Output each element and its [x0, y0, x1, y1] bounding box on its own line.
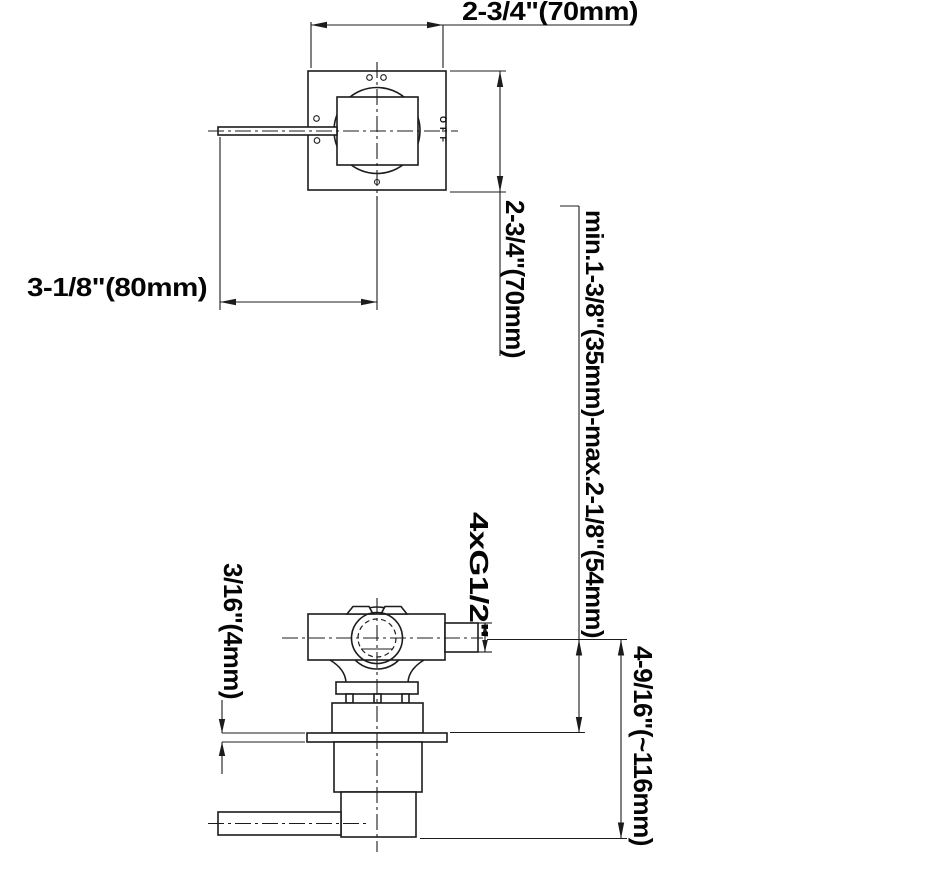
- arrowhead-right: [427, 22, 443, 28]
- arrowhead-up: [618, 640, 624, 656]
- valve-dimension-drawing: OFF 2-3/4"(70mm) 2-3/4"(70mm) 3-1/8"(80m…: [0, 0, 951, 895]
- dim-port-spec: 4xG1/2": [464, 512, 494, 652]
- handle-hub: [341, 792, 416, 837]
- arrowhead-up: [497, 71, 503, 87]
- dim-port-spec-label: 4xG1/2": [464, 512, 494, 638]
- dim-handle-projection-label: 3-1/8"(80mm): [27, 272, 207, 302]
- valve-wing-right: [381, 607, 407, 615]
- arrowhead-left: [311, 22, 327, 28]
- valve-wing-left: [347, 607, 373, 615]
- front-view: OFF: [208, 62, 458, 200]
- dim-plate-width-label: 2-3/4"(70mm): [462, 0, 638, 26]
- dim-plate-height: 2-3/4"(70mm): [450, 71, 530, 358]
- stud: [346, 694, 353, 703]
- stud: [402, 694, 409, 703]
- dim-plate-thickness: 3/16"(4mm): [218, 563, 305, 774]
- dim-plate-height-label: 2-3/4"(70mm): [500, 200, 530, 358]
- arrowhead-up: [219, 742, 225, 756]
- arrowhead-down: [482, 640, 488, 652]
- handle-off-marking: OFF: [438, 116, 448, 143]
- arrowhead-down: [219, 719, 225, 733]
- body-skirt-left: [330, 660, 346, 682]
- arrowhead-down: [576, 717, 582, 733]
- body-skirt-right: [408, 660, 424, 682]
- arrowhead-up: [576, 640, 582, 656]
- arrowhead-down: [618, 823, 624, 839]
- arrowhead-down: [497, 176, 503, 192]
- valve-stem-body: [334, 742, 422, 792]
- technical-drawing-page: OFF 2-3/4"(70mm) 2-3/4"(70mm) 3-1/8"(80m…: [0, 0, 951, 895]
- dim-install-depth-range-label: min.1-3/8"(35mm)-max.2-1/8"(54mm): [580, 210, 608, 638]
- dim-overall-height-label: 4-9/16"(~116mm): [628, 646, 658, 846]
- side-view: [208, 598, 483, 852]
- arrowhead-right: [361, 299, 377, 305]
- dim-overall-height: 4-9/16"(~116mm): [420, 640, 658, 847]
- arrowhead-left: [220, 299, 236, 305]
- dim-plate-thickness-label: 3/16"(4mm): [218, 563, 248, 699]
- dim-plate-width: 2-3/4"(70mm): [311, 0, 638, 68]
